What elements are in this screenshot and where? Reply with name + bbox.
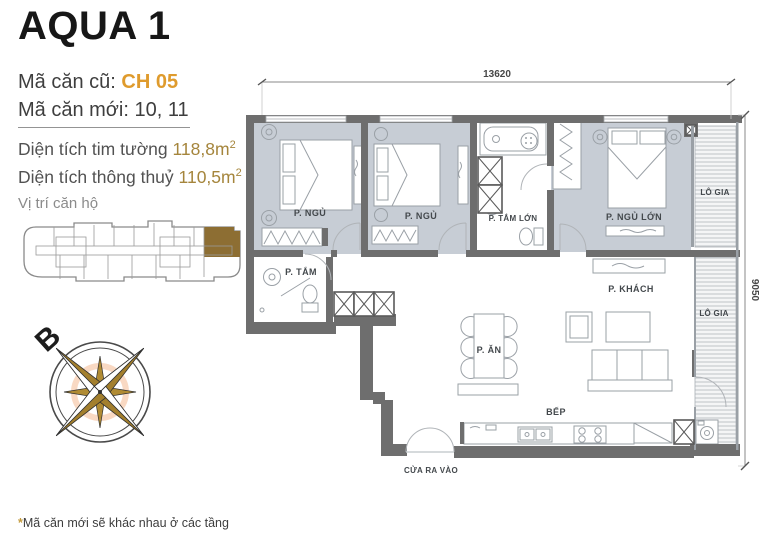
room-label-dining: P. ĂN [477, 345, 502, 355]
building-keyplan [8, 213, 246, 295]
divider-line [18, 127, 190, 128]
footnote-text: Mã căn mới sẽ khác nhau ở các tầng [23, 516, 229, 530]
compass-center-dot [98, 390, 102, 394]
floorplan-sheet: AQUA 1 Mã căn cũ: CH 05 Mã căn mới: 10, … [0, 0, 768, 543]
old-code-value: CH 05 [121, 71, 178, 93]
net-area-value: 110,5m [179, 167, 236, 187]
room-label-loggia-right: LÔ GIA [699, 309, 728, 318]
new-code-line: Mã căn mới: 10, 11 [18, 96, 189, 124]
new-code-value: 10, 11 [134, 99, 188, 121]
area-info: Diện tích tim tường 118,8m2 Diện tích th… [18, 133, 242, 189]
room-label-living: P. KHÁCH [608, 284, 654, 294]
net-area-label: Diện tích thông thuỷ [18, 167, 179, 187]
highlighted-unit [204, 227, 240, 257]
gross-area-label: Diện tích tim tường [18, 139, 173, 159]
entrance-label: CỬA RA VÀO [404, 466, 458, 475]
room-label-kitchen: BẾP [546, 407, 566, 417]
room-label-bath-large: P. TẮM LỚN [489, 214, 538, 223]
coffee-table [606, 312, 650, 342]
net-area-sup: 2 [236, 167, 242, 179]
armchair [566, 312, 592, 342]
unit-codes: Mã căn cũ: CH 05 Mã căn mới: 10, 11 [18, 68, 189, 124]
gross-area-value: 118,8m [173, 139, 230, 159]
unit-location-label: Vị trí căn hộ [18, 195, 98, 212]
master-closet-rack [553, 121, 581, 189]
dim-width-label: 13620 [483, 69, 511, 80]
room-label-bedroom1: P. NGỦ [294, 207, 326, 218]
old-code-label: Mã căn cũ: [18, 71, 121, 93]
footnote: *Mã căn mới sẽ khác nhau ở các tầng [18, 516, 229, 530]
page-title: AQUA 1 [18, 4, 171, 49]
washing-machine [696, 420, 718, 444]
dim-height-label: 9050 [749, 279, 760, 302]
new-code-label: Mã căn mới: [18, 99, 134, 121]
room-label-bedroom2: P. NGỦ [405, 210, 437, 221]
room-label-loggia-top: LÔ GIA [700, 188, 729, 197]
loggia-top-floor [695, 126, 736, 247]
room-label-bath-small: P. TẮM [285, 267, 317, 277]
net-area-line: Diện tích thông thuỷ 110,5m2 [18, 161, 242, 189]
kitchen-counter [464, 423, 672, 444]
floor-plan: 13620 9050 P. NGỦ P. NGỦ P. TẮM LỚN P. N… [244, 55, 768, 503]
bathtub [480, 123, 546, 155]
gross-area-line: Diện tích tim tường 118,8m2 [18, 133, 242, 161]
old-code-line: Mã căn cũ: CH 05 [18, 68, 189, 96]
tv-console [593, 259, 665, 273]
wardrobe-2 [372, 226, 418, 244]
gross-area-sup: 2 [230, 139, 236, 151]
wardrobe-1 [262, 228, 328, 246]
compass-rose: B [25, 312, 175, 464]
room-label-master: P. NGỦ LỚN [606, 211, 662, 222]
bath-large-toilet [520, 228, 544, 245]
sofa [588, 350, 672, 391]
